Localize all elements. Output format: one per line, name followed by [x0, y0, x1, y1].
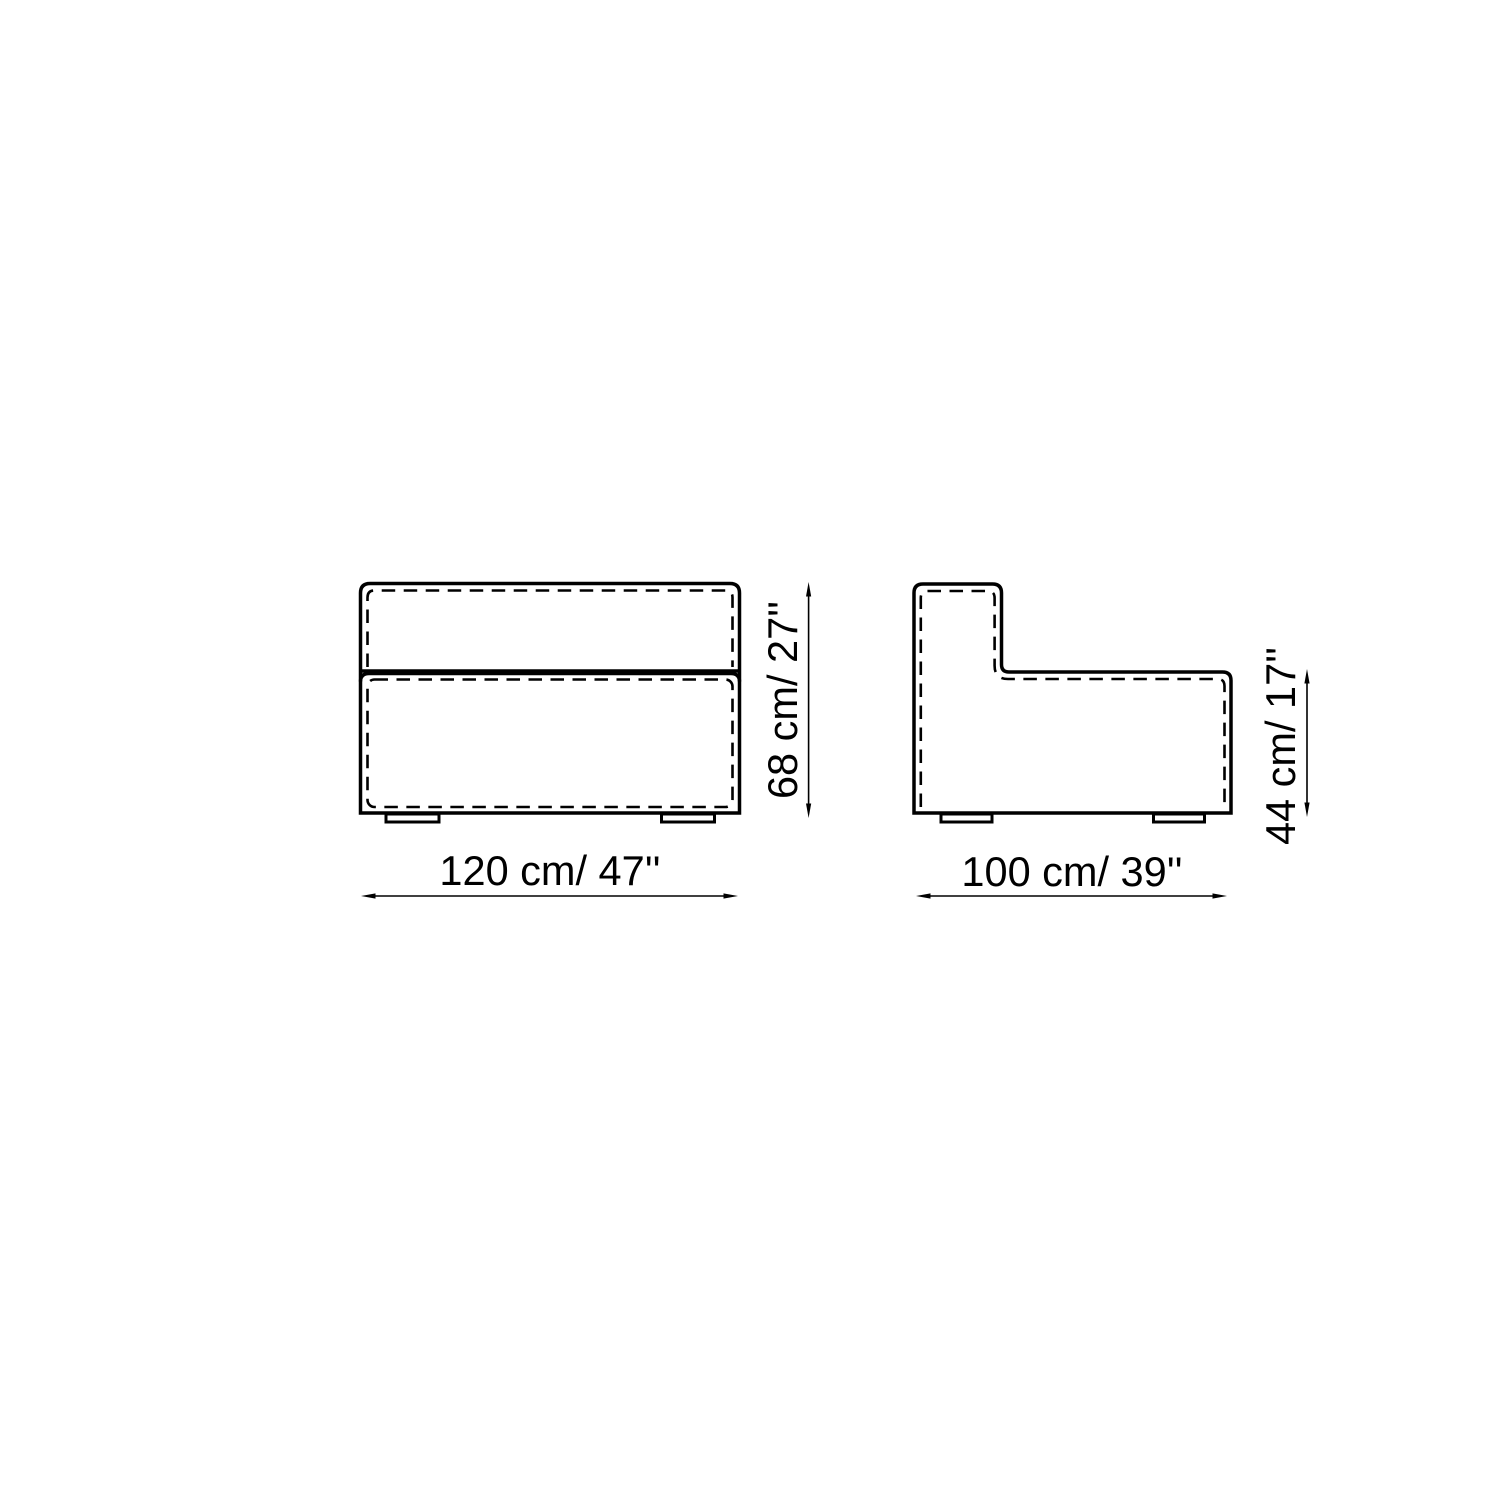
- svg-text:68 cm/ 27'': 68 cm/ 27'': [759, 601, 806, 799]
- svg-text:100 cm/ 39'': 100 cm/ 39'': [961, 848, 1182, 895]
- svg-text:44 cm/ 17'': 44 cm/ 17'': [1257, 647, 1304, 845]
- svg-text:120 cm/ 47'': 120 cm/ 47'': [439, 847, 660, 894]
